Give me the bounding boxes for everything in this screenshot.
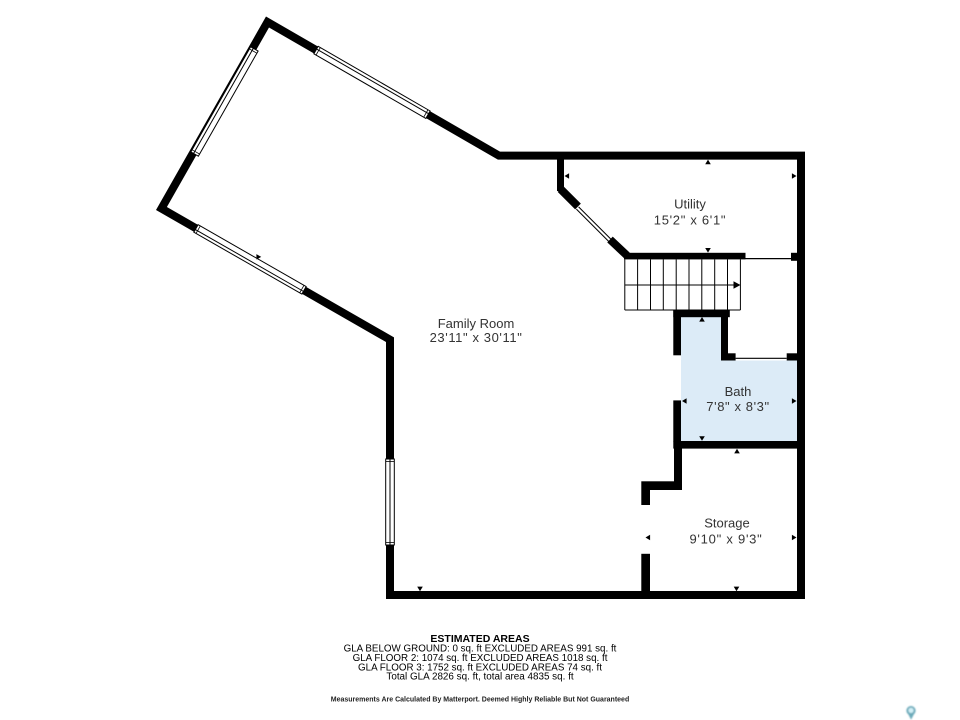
svg-text:Family Room: Family Room	[438, 316, 515, 331]
svg-text:23'11" x 30'11": 23'11" x 30'11"	[430, 330, 523, 345]
svg-text:Bath: Bath	[725, 384, 752, 399]
svg-text:9'10" x 9'3": 9'10" x 9'3"	[689, 532, 762, 547]
svg-text:15'2" x 6'1": 15'2" x 6'1"	[654, 213, 726, 228]
svg-text:7'8" x 8'3": 7'8" x 8'3"	[706, 399, 769, 414]
svg-text:Total GLA 2826 sq. ft, total a: Total GLA 2826 sq. ft, total area 4835 s…	[386, 672, 573, 683]
svg-text:Storage: Storage	[704, 516, 750, 531]
svg-text:Measurements Are Calculated By: Measurements Are Calculated By Matterpor…	[331, 696, 629, 703]
svg-text:Utility: Utility	[674, 197, 706, 212]
